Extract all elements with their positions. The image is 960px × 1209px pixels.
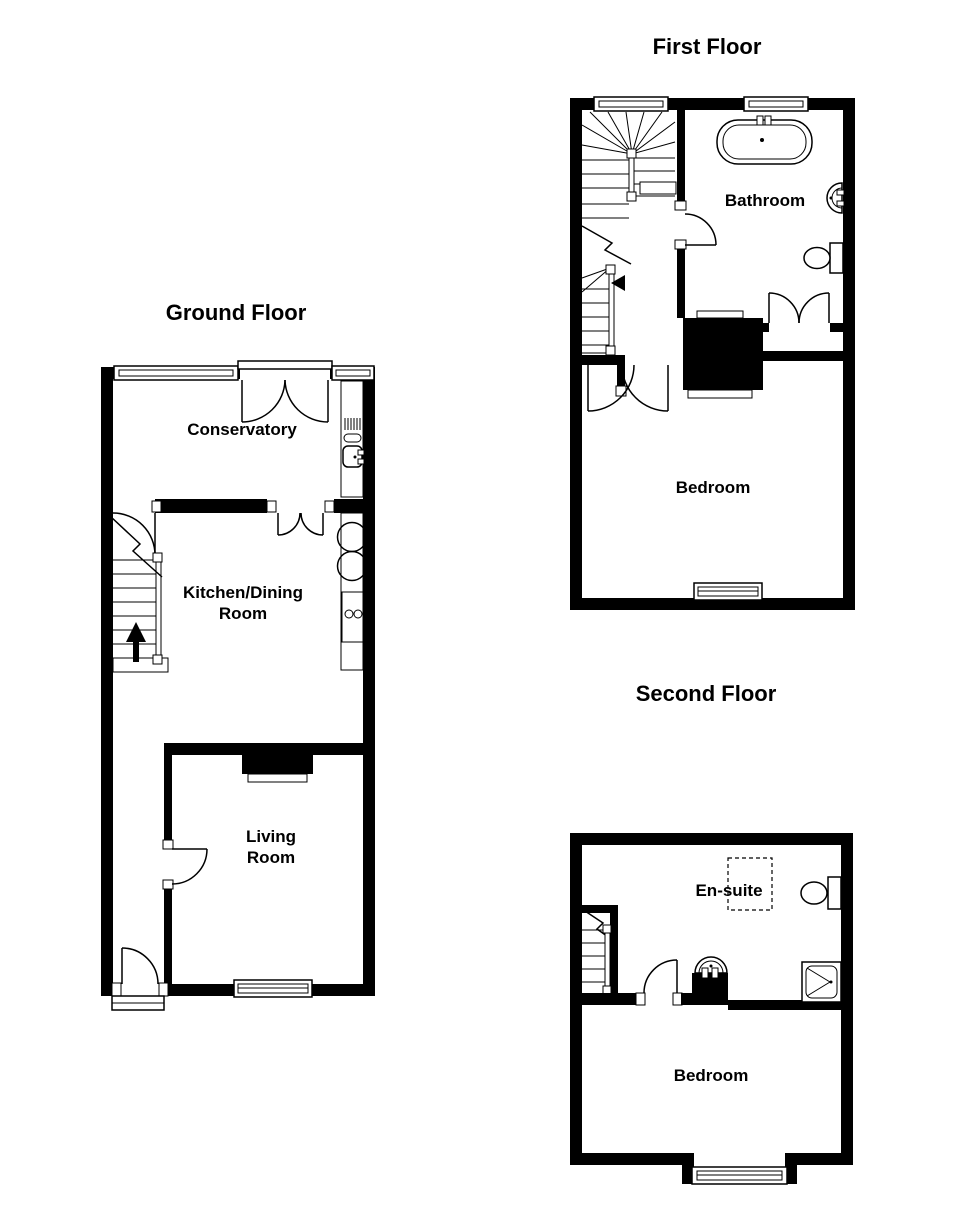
- interior-wall: [163, 743, 173, 984]
- door: [172, 849, 207, 884]
- cupboard-doors: [763, 293, 843, 332]
- interior-wall: [582, 355, 625, 365]
- door: [685, 214, 716, 245]
- room-label-living-line2: Room: [247, 848, 295, 867]
- kitchen-counter: [338, 513, 367, 670]
- room-label-bedroom: Bedroom: [674, 1066, 749, 1085]
- chimney-breast: [683, 311, 763, 398]
- floorplan-page: { "colors": { "wall": "#000000", "backgr…: [0, 0, 960, 1209]
- window: [694, 583, 762, 600]
- staircase-up: [582, 112, 676, 264]
- staircase-down: [582, 265, 625, 355]
- room-label-bathroom: Bathroom: [725, 191, 805, 210]
- first-floor-plan: First Floor: [555, 25, 870, 625]
- door: [113, 513, 155, 555]
- double-door: [588, 365, 668, 411]
- interior-wall: [152, 499, 363, 513]
- room-label-kitchen-line1: Kitchen/Dining: [183, 583, 303, 602]
- front-door: [112, 948, 168, 996]
- vanity-basin: [692, 957, 728, 1005]
- staircase: [110, 516, 168, 672]
- door: [644, 960, 677, 993]
- shower: [802, 962, 841, 1002]
- room-label-bedroom: Bedroom: [676, 478, 751, 497]
- bathtub: [717, 116, 812, 164]
- outer-walls: [101, 367, 375, 996]
- window: [234, 980, 312, 997]
- porch-step: [112, 996, 164, 1010]
- door-stop: [616, 386, 626, 396]
- window: [744, 97, 808, 111]
- window: [594, 97, 668, 111]
- room-label-kitchen-line2: Room: [219, 604, 267, 623]
- stair-direction-arrow: [126, 622, 146, 642]
- room-label-living-line1: Living: [246, 827, 296, 846]
- french-doors: [238, 361, 332, 422]
- chimney-breast: [242, 755, 313, 782]
- interior-wall: [172, 743, 363, 755]
- ground-floor-title: Ground Floor: [166, 300, 307, 325]
- first-floor-title: First Floor: [653, 34, 762, 59]
- room-label-ensuite: En-suite: [695, 881, 762, 900]
- room-label-conservatory: Conservatory: [187, 420, 297, 439]
- interior-wall: [675, 110, 686, 318]
- toilet: [801, 877, 841, 909]
- bay-window: [682, 1153, 797, 1184]
- interior-wall: [763, 351, 843, 361]
- double-door: [278, 513, 323, 535]
- window: [332, 366, 374, 380]
- sink: [827, 183, 844, 213]
- second-floor-title: Second Floor: [636, 681, 777, 706]
- ground-floor-plan: Ground Floor: [95, 285, 395, 1015]
- toilet: [804, 243, 843, 273]
- window: [114, 366, 238, 380]
- staircase: [582, 905, 618, 994]
- sink-unit: [341, 381, 364, 497]
- second-floor-plan: Second Floor: [555, 660, 870, 1209]
